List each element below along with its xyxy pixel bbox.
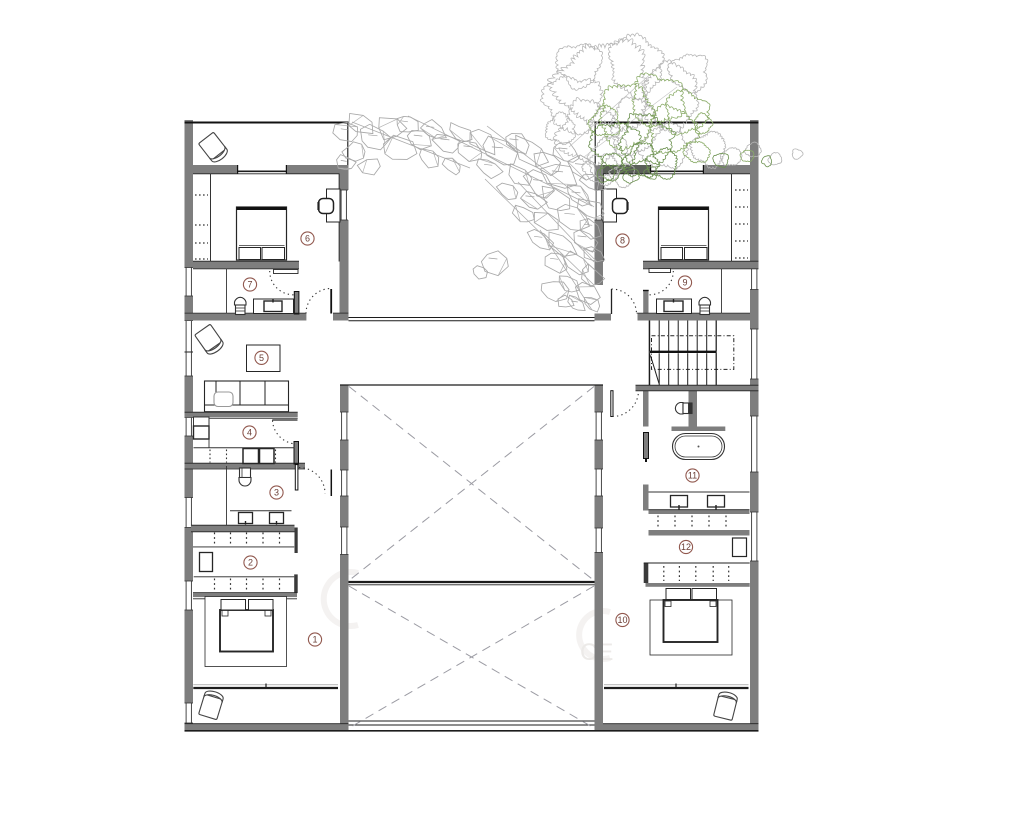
svg-text:12: 12 bbox=[681, 542, 691, 552]
svg-text:3: 3 bbox=[274, 488, 279, 498]
svg-text:9: 9 bbox=[682, 278, 687, 288]
svg-text:2: 2 bbox=[248, 558, 253, 568]
svg-text:5: 5 bbox=[259, 353, 264, 363]
svg-text:7: 7 bbox=[247, 280, 252, 290]
svg-text:11: 11 bbox=[688, 471, 697, 481]
svg-text:8: 8 bbox=[620, 236, 625, 246]
svg-text:4: 4 bbox=[247, 428, 252, 438]
svg-text:10: 10 bbox=[617, 615, 627, 625]
svg-text:1: 1 bbox=[312, 635, 317, 645]
svg-text:6: 6 bbox=[305, 234, 310, 244]
